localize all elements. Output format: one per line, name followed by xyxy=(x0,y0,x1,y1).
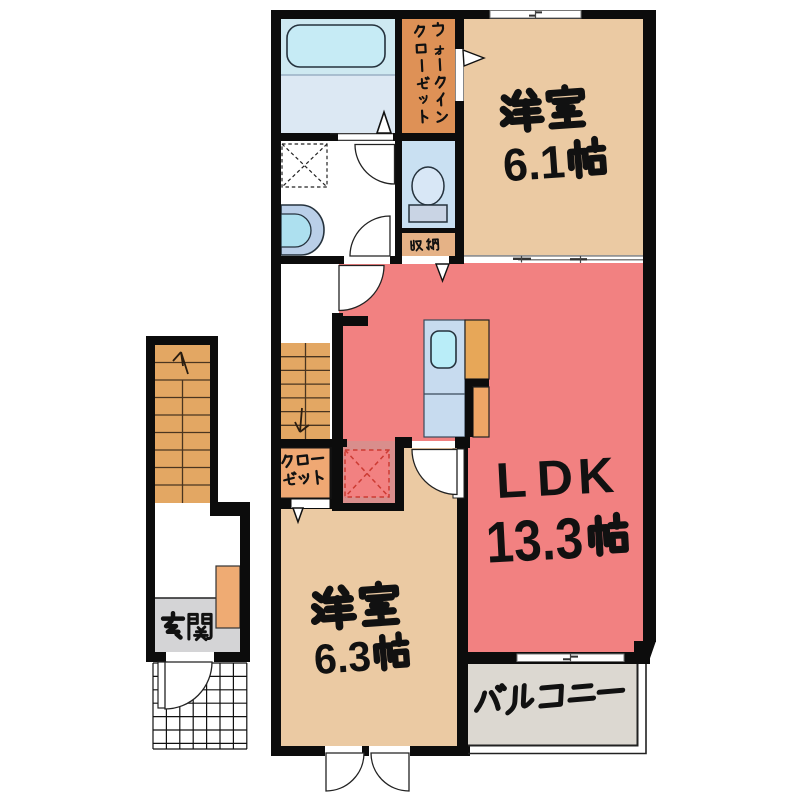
svg-text:L: L xyxy=(494,452,527,510)
svg-text:6.3: 6.3 xyxy=(312,632,372,683)
svg-text:K: K xyxy=(576,447,615,505)
svg-text:D: D xyxy=(535,449,574,507)
svg-text:13.3: 13.3 xyxy=(484,506,584,576)
svg-text:6.1: 6.1 xyxy=(501,135,566,191)
